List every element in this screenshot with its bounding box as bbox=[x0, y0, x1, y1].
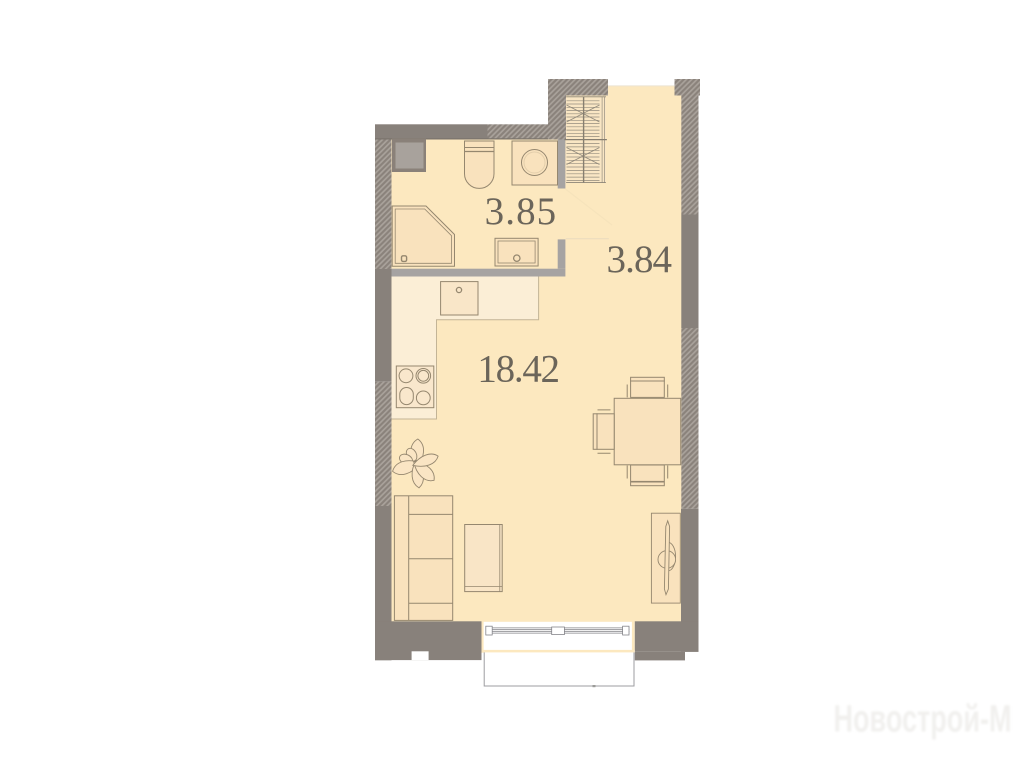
svg-text:Новострой-М: Новострой-М bbox=[834, 699, 1012, 741]
svg-text:18.42: 18.42 bbox=[477, 347, 560, 390]
svg-text:3.85: 3.85 bbox=[485, 190, 557, 233]
svg-text:3.84: 3.84 bbox=[607, 238, 673, 281]
